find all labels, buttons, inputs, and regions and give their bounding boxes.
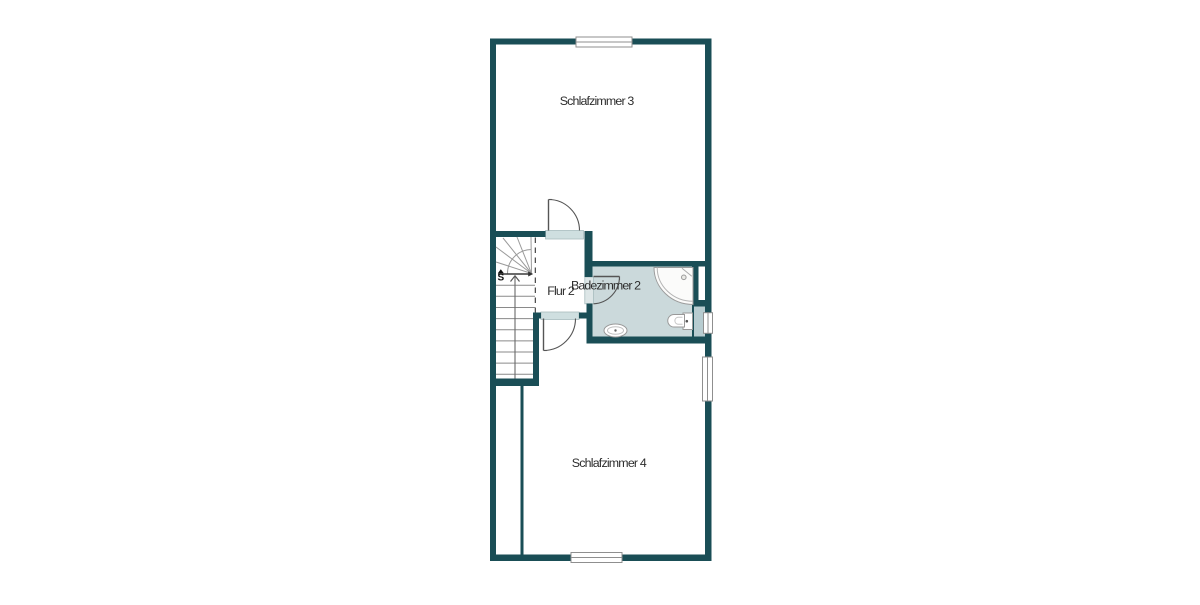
svg-text:Badezimmer 2: Badezimmer 2 (571, 279, 641, 293)
svg-text:Schlafzimmer 3: Schlafzimmer 3 (560, 94, 635, 108)
svg-text:S: S (498, 273, 505, 284)
svg-text:Schlafzimmer 4: Schlafzimmer 4 (572, 456, 647, 470)
